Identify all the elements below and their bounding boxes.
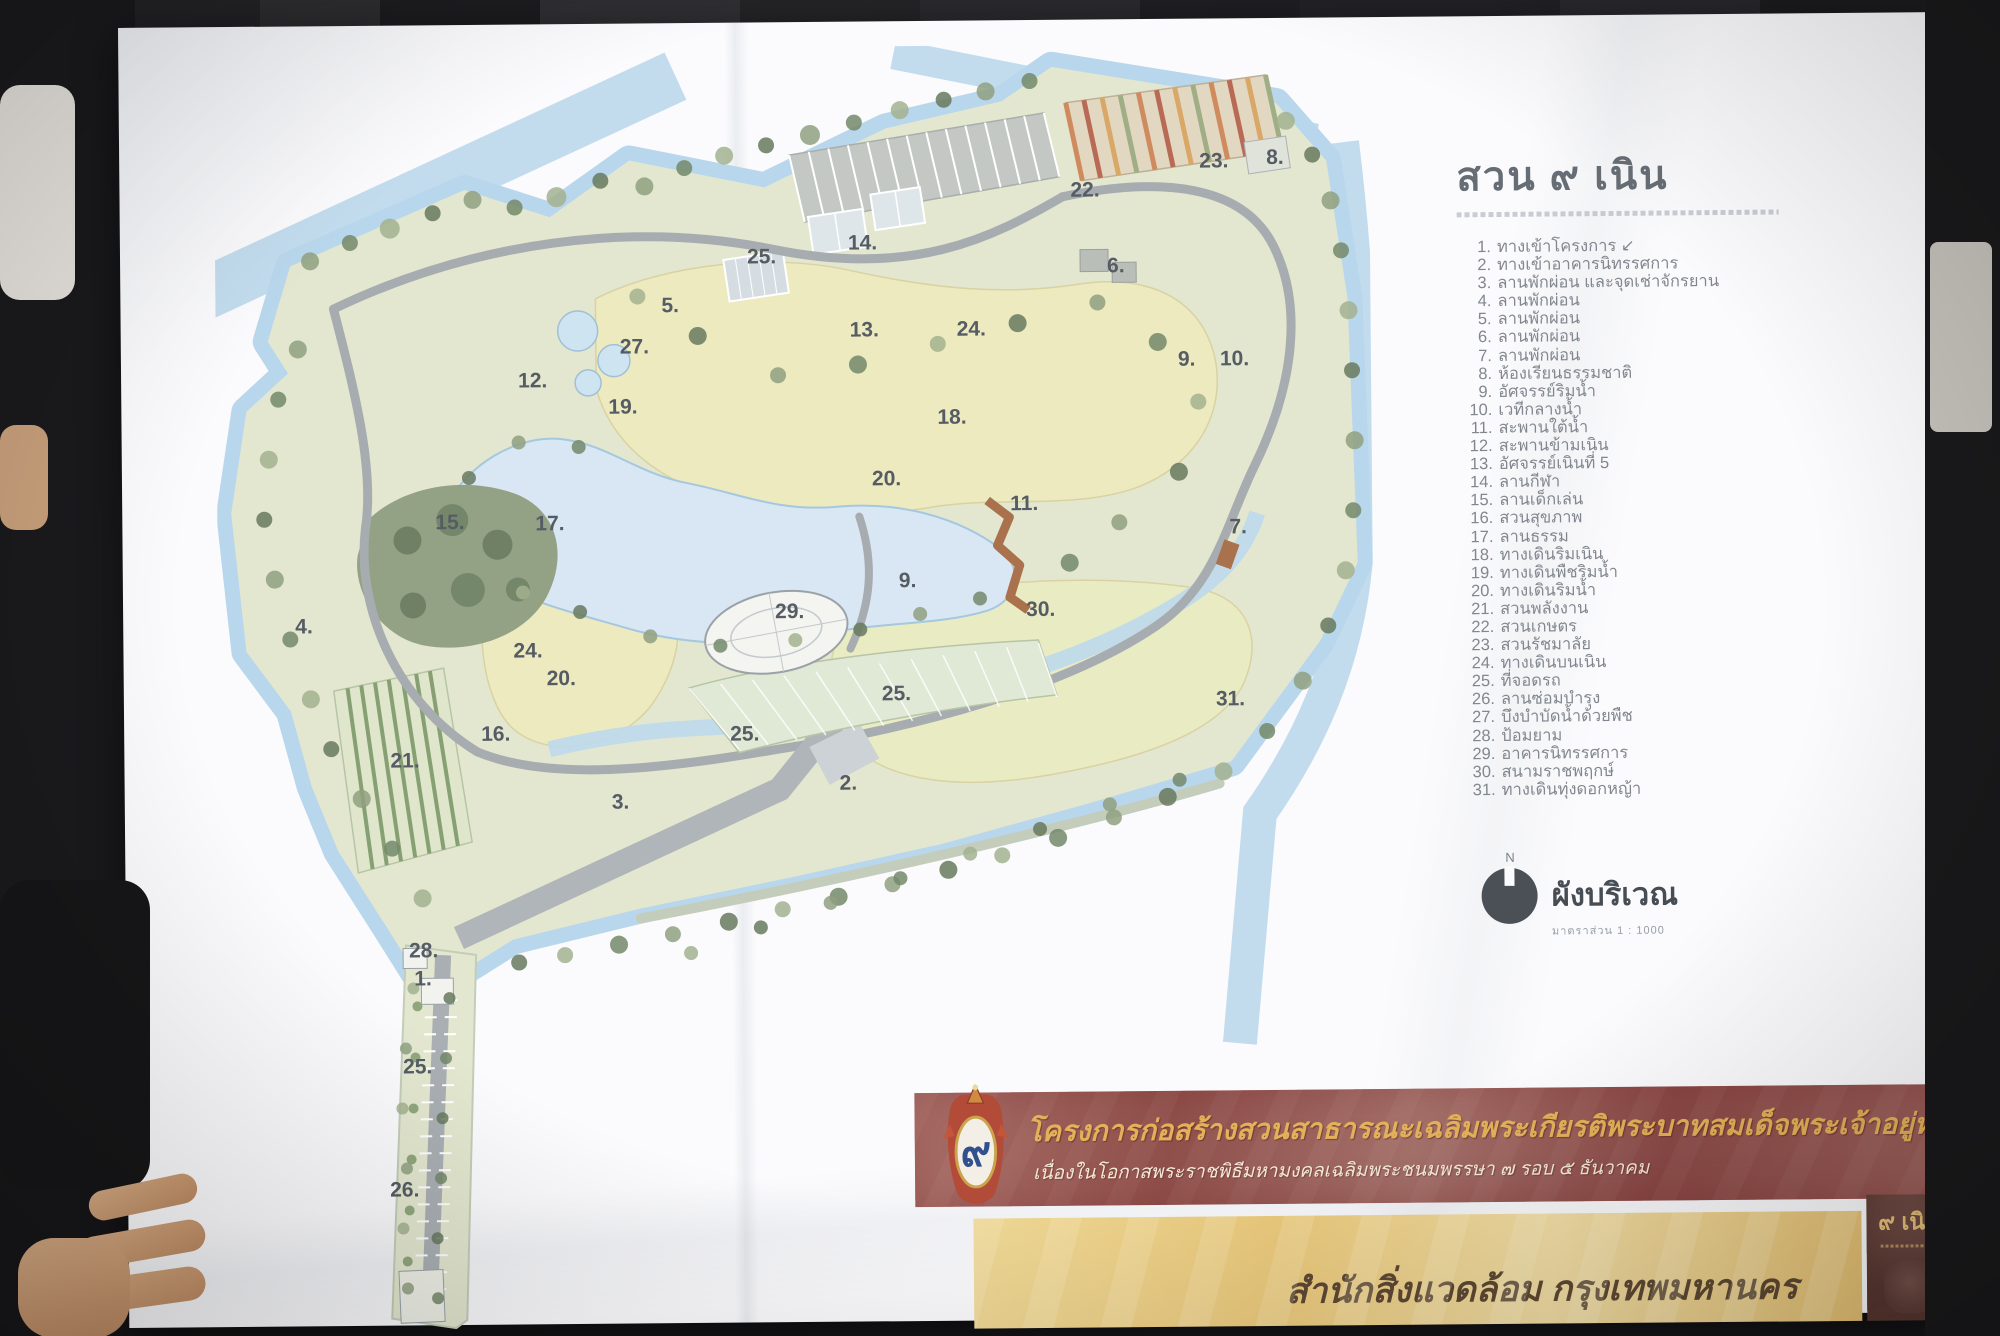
map-number: 23. <box>1199 149 1228 172</box>
map-number: 15. <box>435 511 464 534</box>
map-number: 10. <box>1220 347 1249 370</box>
north-arrow-block: N ผังบริเวณ มาตราส่วน 1 : 1000 <box>1481 850 1678 940</box>
paper-in-hand <box>1930 242 1992 432</box>
site-plan-poster: 1.2.3.4.5.6.7.8.9.10.9.11.12.13.14.15.16… <box>118 12 1944 1328</box>
map-number: 1. <box>414 967 432 990</box>
map-number: 18. <box>937 406 966 429</box>
map-number: 20. <box>547 667 576 690</box>
site-plan-label: ผังบริเวณ <box>1551 868 1678 919</box>
map-number: 28. <box>409 939 438 962</box>
project-banner: ๙ โครงการก่อสร้างสวนสาธารณะเฉลิมพระเกียร… <box>914 1084 1957 1207</box>
map-number: 22. <box>1070 178 1099 201</box>
map-number: 20. <box>872 467 901 490</box>
map-number: 2. <box>840 772 858 795</box>
map-number: 17. <box>535 512 564 535</box>
map-number: 29. <box>775 600 804 623</box>
map-number: 30. <box>1026 598 1055 621</box>
map-number: 16. <box>481 723 510 746</box>
map-number: 9. <box>899 569 917 592</box>
photo-of-site-plan-poster: 1.2.3.4.5.6.7.8.9.10.9.11.12.13.14.15.16… <box>0 0 2000 1336</box>
map-number: 6. <box>1107 254 1125 277</box>
arm-skin <box>0 425 48 530</box>
map-number: 24. <box>957 317 986 340</box>
legend-item: 31.ทางเดินทุ่งดอกหญ้า <box>1462 778 1862 800</box>
map-number: 26. <box>390 1178 419 1201</box>
map-number: 25. <box>747 245 776 268</box>
royal-emblem-icon: ๙ <box>936 1084 1015 1213</box>
legend-list: 1.ทางเข้าโครงการ ↙2.ทางเข้าอาคารนิทรรศกา… <box>1457 235 1862 799</box>
banner-line2: เนื่องในโอกาสพระราชพิธีมหามงคลเฉลิมพระชน… <box>1033 1153 1649 1188</box>
map-number: 25. <box>403 1055 432 1078</box>
banner-line1: โครงการก่อสร้างสวนสาธารณะเฉลิมพระเกียรติ… <box>1026 1100 1946 1154</box>
map-number: 12. <box>518 369 547 392</box>
north-letter: N <box>1505 850 1515 865</box>
white-shirt <box>0 85 75 300</box>
map-number: 31. <box>1216 687 1245 710</box>
map-number: 8. <box>1266 146 1284 169</box>
map-number: 4. <box>295 615 313 638</box>
holding-hand-palm <box>18 1238 130 1336</box>
plan-title: สวน ๙ เนิน <box>1456 142 1669 208</box>
map-number: 7. <box>1229 515 1247 538</box>
map-number: 14. <box>848 231 877 254</box>
scale-label: มาตราส่วน 1 : 1000 <box>1552 920 1679 939</box>
title-caption-line <box>1457 210 1779 218</box>
map-number: 13. <box>850 318 879 341</box>
dark-sleeve <box>0 880 150 1190</box>
svg-text:๙: ๙ <box>960 1128 991 1175</box>
map-number: 3. <box>612 791 630 814</box>
map-number: 11. <box>1010 492 1038 515</box>
north-arrow-icon: N <box>1481 868 1537 924</box>
footer-band: สำนักสิ่งแวดล้อม กรุงเทพมหานคร <box>973 1211 1862 1329</box>
map-number: 21. <box>390 749 419 772</box>
map-number: 27. <box>620 335 649 358</box>
agency-name: สำนักสิ่งแวดล้อม กรุงเทพมหานคร <box>1286 1259 1798 1318</box>
map-number: 25. <box>882 682 911 705</box>
map-number: 24. <box>513 639 542 662</box>
map-number: 25. <box>730 722 759 745</box>
background-figure-right <box>1925 0 2000 1336</box>
map-number: 19. <box>608 395 637 418</box>
map-number: 5. <box>661 294 679 317</box>
map-number: 9. <box>1178 348 1196 371</box>
